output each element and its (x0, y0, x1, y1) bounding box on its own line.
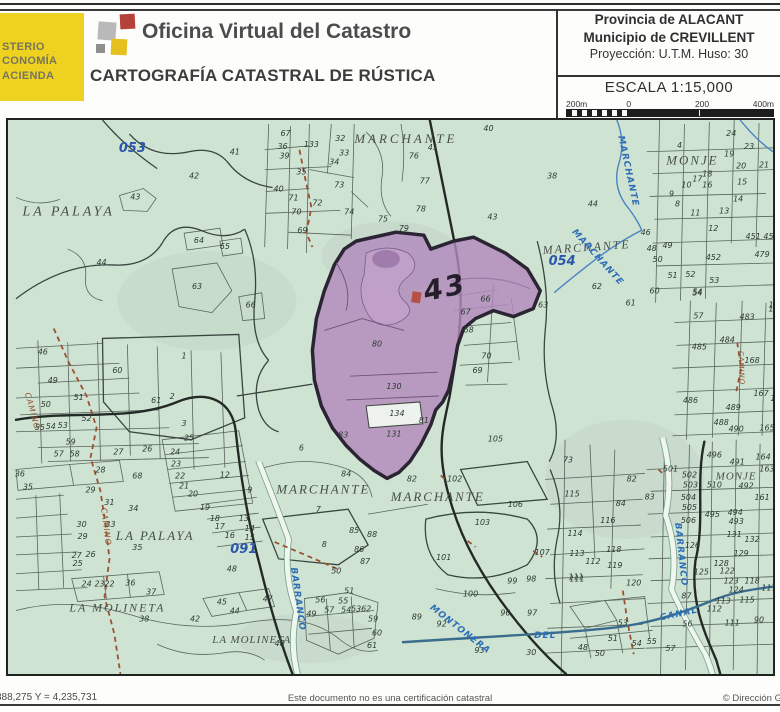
place-name: LA PALAYA (115, 528, 195, 543)
page-subtitle: CARTOGRAFÍA CATASTRAL DE RÚSTICA (90, 66, 435, 86)
parcel-number: 103 (475, 518, 490, 527)
parcel-number: 23 (94, 580, 104, 589)
parcel-number: 483 (740, 313, 755, 322)
parcel-number: 131 (386, 430, 401, 439)
parcel-number: 21 (759, 161, 769, 170)
parcel-number: 36 (15, 469, 25, 478)
parcel-number: 452 (706, 253, 721, 262)
parcel-number: 489 (726, 403, 741, 412)
parcel-number: 58 (70, 450, 80, 459)
place-name: MARCHANTE (353, 131, 457, 146)
parcel-number: 30 (526, 648, 536, 657)
parcel-number: 69 (297, 226, 307, 235)
parcel-number: 44 (588, 199, 598, 208)
parcel-number: 70 (291, 207, 301, 216)
parcel-number: 63 (538, 301, 548, 310)
parcel-number: 131 (727, 530, 742, 539)
parcel-number: 29 (78, 532, 88, 541)
parcel-number: 83 (645, 492, 655, 501)
parcel-number: 49 (306, 609, 316, 618)
road-label: CAMINO (99, 507, 113, 546)
ministry-line: CONOMÍA (2, 54, 84, 68)
parcel-number: 4 (677, 141, 682, 150)
parcel-number: 26 (142, 445, 152, 454)
parcel-number: 122 (720, 567, 735, 576)
parcel-number: 75 (378, 214, 388, 223)
parcel-number: 126 (685, 541, 700, 550)
parcel-number: 14 (245, 524, 255, 533)
parcel-number: 61 (151, 396, 161, 405)
waterway-label: MARCHANTE (615, 135, 640, 208)
parcel-number: 85 (349, 526, 359, 535)
parcel-number: 116 (600, 516, 615, 525)
parcel-number: 90 (754, 615, 764, 624)
scalebar-label: 200 (695, 99, 709, 109)
parcel-number: 99 (507, 577, 517, 586)
parcel-number: 36 (125, 579, 135, 588)
parcel-number: 22 (175, 471, 185, 480)
parcel-number: 46 (38, 347, 48, 356)
parcel-number: 115 (564, 489, 579, 498)
parcel-number: 40 (274, 184, 284, 193)
parcel-number: 29 (86, 485, 96, 494)
parcel-number: 73 (563, 456, 573, 465)
parcel-number: 38 (547, 172, 557, 181)
parcel-number: 98 (526, 575, 536, 584)
parcel-number: 19 (200, 503, 210, 512)
waterway-label: MONTONERA (428, 603, 493, 656)
waterway-label: MARCHANTE (569, 227, 625, 287)
parcel-number: 44 (96, 258, 106, 267)
parcel-number: 118 (745, 577, 760, 586)
parcel-number: 504 (681, 493, 696, 502)
parcel-number: 501 (663, 464, 678, 473)
parcel-number: 86 (354, 545, 364, 554)
parcel-number: 168 (745, 356, 760, 365)
parcel-number: 107 (535, 548, 550, 557)
parcel-number: 11 (690, 208, 700, 217)
parcel-number: 130 (386, 382, 401, 391)
projection-label: Proyección: U.T.M. Huso: 30 (558, 47, 780, 61)
parcel-number: 6 (299, 444, 304, 453)
parcel-number: 48 (227, 565, 237, 574)
parcel-number: 60 (112, 366, 122, 375)
parcel-number: 52 (82, 414, 92, 423)
parcel-number: 496 (707, 451, 722, 460)
parcel-number: 40 (483, 124, 493, 133)
parcel-number: 52 (685, 270, 695, 279)
parcel-number: 165 (759, 424, 773, 433)
parcel-number: 120 (626, 579, 641, 588)
parcel-number: 61 (626, 299, 636, 308)
scale-bar: 200m 0 200 400m (566, 99, 774, 117)
parcel-number: 24 (170, 448, 180, 457)
parcel-number: 16 (225, 531, 235, 540)
parcel-number: 49 (48, 376, 58, 385)
parcel-number: 34 (128, 504, 138, 513)
scan-smudge (372, 250, 400, 268)
parcel-number: 41 (230, 148, 240, 157)
parcel-number: 66 (246, 301, 256, 310)
parcel-number: 96 (500, 608, 510, 617)
parcel-number: 37 (146, 588, 156, 597)
parcel-number: 67 (461, 308, 471, 317)
polygon-number: 091 (230, 542, 257, 557)
parcel-number: 495 (705, 510, 720, 519)
parcel-number: 26 (86, 550, 96, 559)
parcel-number: 10 (681, 181, 691, 190)
parcel-number: 53 (58, 421, 68, 430)
parcel-number: 51 (74, 393, 84, 402)
map-viewport[interactable]: 4142434464656366673613332333934354073717… (6, 118, 775, 676)
info-panel: Provincia de ALACANT Municipio de CREVIL… (556, 9, 780, 118)
parcel-number: 80 (372, 339, 382, 348)
parcel-number: 71 (288, 193, 298, 202)
parcel-number: 101 (436, 553, 451, 562)
parcel-number: 43 (487, 212, 497, 221)
parcel-number: 486 (683, 396, 698, 405)
parcel-number: 13 (719, 206, 729, 215)
parcel-number: 492 (739, 481, 754, 490)
parcel-number: 44 (230, 606, 240, 615)
cadastral-map-page: STERIO CONOMÍA ACIENDA Oficina Virtual d… (0, 0, 780, 712)
parcel-number: 68 (132, 471, 142, 480)
parcel-number: 111 (569, 575, 584, 584)
parcel-number: 2 (170, 392, 175, 401)
parcel-number: 39 (279, 152, 289, 161)
parcel-number: 15 (245, 533, 255, 542)
parcel-number: 117 (761, 584, 773, 593)
parcel-number: 57 (54, 450, 64, 459)
parcel-number: 450 (763, 232, 773, 241)
place-name: MONJE (665, 153, 718, 168)
parcel-number: 97 (527, 608, 537, 617)
place-name: MONJE (715, 470, 757, 482)
parcel-number: 61 (367, 641, 377, 650)
parcel-number: 59 (66, 438, 76, 447)
parcel-number: 503 (683, 480, 698, 489)
parcel-number: 20 (736, 162, 746, 171)
page-title: Oficina Virtual del Catastro (142, 20, 411, 44)
parcel-number: 7 (316, 505, 321, 514)
parcel-number: 57 (324, 605, 334, 614)
parcel-number: 87 (360, 557, 370, 566)
scalebar-label: 400m (753, 99, 774, 109)
parcel-number: 38 (139, 614, 149, 623)
parcel-number: 88 (367, 530, 377, 539)
parcel-number: 65 (220, 242, 230, 251)
parcel-number: 161 (754, 493, 769, 502)
parcel-number: 63 (192, 282, 202, 291)
parcel-number: 25 (184, 434, 194, 443)
parcel-number: 484 (720, 335, 735, 344)
parcel-number: 3 (182, 419, 187, 428)
parcel-number: 54 (632, 639, 642, 648)
parcel-number: 35 (296, 168, 306, 177)
parcel-number: 502 (682, 470, 697, 479)
parcel-number: 82 (627, 474, 637, 483)
parcel-number: 491 (730, 458, 745, 467)
scale-section: ESCALA 1:15,000 200m 0 200 400m (558, 75, 780, 120)
parcel-number: 57 (693, 312, 703, 321)
parcel-number: 51 (667, 271, 677, 280)
parcel-number: 74 (344, 207, 354, 216)
parcel-number: 24 (726, 129, 736, 138)
parcel-number: 72 (312, 198, 322, 207)
parcel-number: 50 (331, 567, 341, 576)
parcel-number: 73 (334, 181, 344, 190)
parcel-number: 50 (595, 649, 605, 658)
parcel-number: 17 (215, 522, 225, 531)
scalebar-checker-segment (567, 110, 630, 116)
parcel-number: 8 (322, 540, 327, 549)
parcel-number: 28 (95, 465, 105, 474)
parcel-number: 105 (488, 435, 503, 444)
parcel-number: 83 (338, 431, 348, 440)
parcel-number: 134 (389, 409, 404, 418)
parcel-number: 490 (729, 425, 744, 434)
catastro-logo-icon (92, 12, 142, 67)
parcel-number: 84 (616, 499, 626, 508)
parcel-number: 45 (217, 598, 227, 607)
parcel-number: 494 (728, 508, 743, 517)
parcel-number: 488 (714, 418, 729, 427)
parcel-number: 505 (682, 503, 697, 512)
parcel-number: 111 (725, 618, 740, 627)
parcel-number: 19 (724, 150, 734, 159)
parcel-number: 56 (682, 619, 692, 628)
road-label: CAMINO (737, 351, 746, 385)
parcel-number: 68 (464, 325, 474, 334)
parcel-number: 114 (567, 529, 582, 538)
parcel-number: 102 (447, 474, 462, 483)
parcel-number: 15 (737, 178, 747, 187)
road-label: CAMINO (23, 392, 42, 431)
highlighted-parcel[interactable] (312, 232, 540, 478)
parcel-number: 22 (104, 580, 114, 589)
parcel-number: 16 (702, 181, 712, 190)
place-name: LA PALAYA (22, 204, 115, 219)
parcel-number: 53 (618, 618, 628, 627)
polygon-number: 054 (549, 254, 576, 269)
parcel-number: 56 (315, 596, 325, 605)
parcel-number: 129 (734, 549, 749, 558)
parcel-number: 36 (278, 142, 288, 151)
scale-title: ESCALA 1:15,000 (558, 79, 780, 96)
footer-disclaimer: Este documento no es una certificación c… (0, 693, 780, 704)
parcel-number: 70 (481, 351, 491, 360)
waterway-label: DEL (534, 631, 556, 641)
parcel-number: 163 (759, 464, 773, 473)
parcel-number: 48 (647, 244, 657, 253)
ministry-line: STERIO (2, 40, 84, 54)
parcel-number: 82 (407, 474, 417, 483)
ministry-line: ACIENDA (2, 69, 84, 83)
parcel-number: 79 (399, 224, 409, 233)
parcel-number: 167 (753, 389, 768, 398)
parcel-number: 42 (189, 172, 199, 181)
parcel-number: 12 (220, 470, 230, 479)
parcel-number: 81 (419, 416, 429, 425)
parcel-number: 89 (412, 612, 422, 621)
parcel-number: 106 (508, 500, 523, 509)
place-name: MARCHANTE (275, 481, 370, 496)
place-name: MARCHANTE (390, 489, 485, 504)
parcel-number: 53 (351, 604, 361, 613)
parcel-number: 54 (46, 422, 56, 431)
parcel-number: 1 (768, 305, 773, 314)
parcel-number: 125 (694, 568, 709, 577)
parcel-number: 55 (338, 597, 348, 606)
parcel-number: 23 (744, 142, 754, 151)
parcel-number: 35 (23, 482, 33, 491)
parcel-number: 113 (569, 549, 584, 558)
parcel-number: 59 (368, 614, 378, 623)
parcel-number: 17 (692, 175, 702, 184)
parcel-number: 133 (304, 140, 319, 149)
parcel-number: 18 (702, 170, 712, 179)
parcel-number: 25 (73, 559, 83, 568)
parcel-number: 8 (675, 199, 680, 208)
parcel-number: 54 (692, 289, 702, 298)
parcel-number: 42 (190, 614, 200, 623)
parcel-number: 115 (740, 596, 755, 605)
red-scan-mark (411, 291, 421, 303)
parcel-number: 100 (463, 590, 478, 599)
parcel-number: 132 (745, 535, 760, 544)
footer-divider-line (0, 704, 780, 706)
parcel-number: 50 (41, 400, 51, 409)
parcel-number: 62 (361, 604, 371, 613)
parcel-number: 60 (372, 628, 382, 637)
footer-copyright: © Dirección G (723, 693, 780, 704)
parcel-number: 112 (585, 557, 600, 566)
parcel-number: 87 (681, 592, 691, 601)
parcel-number: 62 (592, 282, 602, 291)
place-name: LA MOLINETA (211, 634, 291, 646)
parcel-number: 493 (729, 517, 744, 526)
parcel-number: 123 (724, 577, 739, 586)
parcel-number: 53 (709, 276, 719, 285)
province-label: Provincia de ALACANT (558, 12, 780, 27)
parcel-number: 51 (344, 587, 354, 596)
ministry-logo-box: STERIO CONOMÍA ACIENDA (0, 13, 84, 101)
parcel-number: 1 (182, 351, 187, 360)
parcel-number: 27 (113, 448, 123, 457)
polygon-number: 053 (119, 141, 146, 156)
parcel-number: 30 (77, 520, 87, 529)
parcel-number: 23 (171, 460, 181, 469)
parcel-number: 164 (755, 453, 770, 462)
map-svg: 4142434464656366673613332333934354073717… (8, 120, 773, 674)
scalebar-solid-segment (630, 110, 774, 116)
municipality-label: Municipio de CREVILLENT (558, 30, 780, 45)
parcel-number: 54 (341, 605, 351, 614)
parcel-number: 35 (132, 543, 142, 552)
parcel-number: 166 (770, 394, 773, 403)
top-border-line (0, 3, 780, 5)
parcel-number: 9 (669, 189, 674, 198)
scalebar-label: 200m (566, 99, 587, 109)
parcel-number: 57 (665, 644, 675, 653)
footer: 388,275 Y = 4,235,731 Este documento no … (0, 688, 780, 706)
parcel-number: 49 (662, 241, 672, 250)
parcel-number: 33 (339, 149, 349, 158)
parcel-number: 50 (653, 255, 663, 264)
parcel-number: 46 (641, 228, 651, 237)
parcel-number: 77 (420, 177, 430, 186)
parcel-number: 67 (280, 129, 290, 138)
parcel-number: 124 (729, 586, 744, 595)
parcel-number: 20 (188, 489, 198, 498)
parcel-number: 51 (608, 634, 618, 643)
parcel-number: 13 (239, 514, 249, 523)
parcel-number: 112 (707, 604, 722, 613)
parcel-number: 485 (692, 342, 707, 351)
parcel-number: 14 (733, 194, 743, 203)
parcel-number: 47 (263, 595, 273, 604)
parcel-number: 119 (607, 561, 622, 570)
place-name: LA MOLINETA (68, 600, 165, 614)
parcel-number: 64 (194, 236, 204, 245)
parcel-number: 55 (647, 637, 657, 646)
parcel-number: 43 (130, 192, 140, 201)
parcel-number: 9 (247, 485, 252, 494)
parcel-number: 31 (104, 498, 114, 507)
parcel-number: 48 (578, 643, 588, 652)
parcel-number: 84 (341, 469, 351, 478)
parcel-number: 60 (650, 287, 660, 296)
parcel-number: 69 (472, 366, 482, 375)
parcel-number: 34 (329, 158, 339, 167)
parcel-number: 12 (708, 224, 718, 233)
parcel-number: 451 (746, 232, 761, 241)
scalebar-label: 0 (626, 99, 631, 109)
parcel-number: 32 (335, 134, 345, 143)
parcel-number: 118 (606, 545, 621, 554)
parcel-number: 76 (409, 152, 419, 161)
parcel-number: 479 (754, 250, 769, 259)
parcel-number: 66 (480, 295, 490, 304)
parcel-number: 78 (416, 204, 426, 213)
parcel-number: 24 (82, 580, 92, 589)
